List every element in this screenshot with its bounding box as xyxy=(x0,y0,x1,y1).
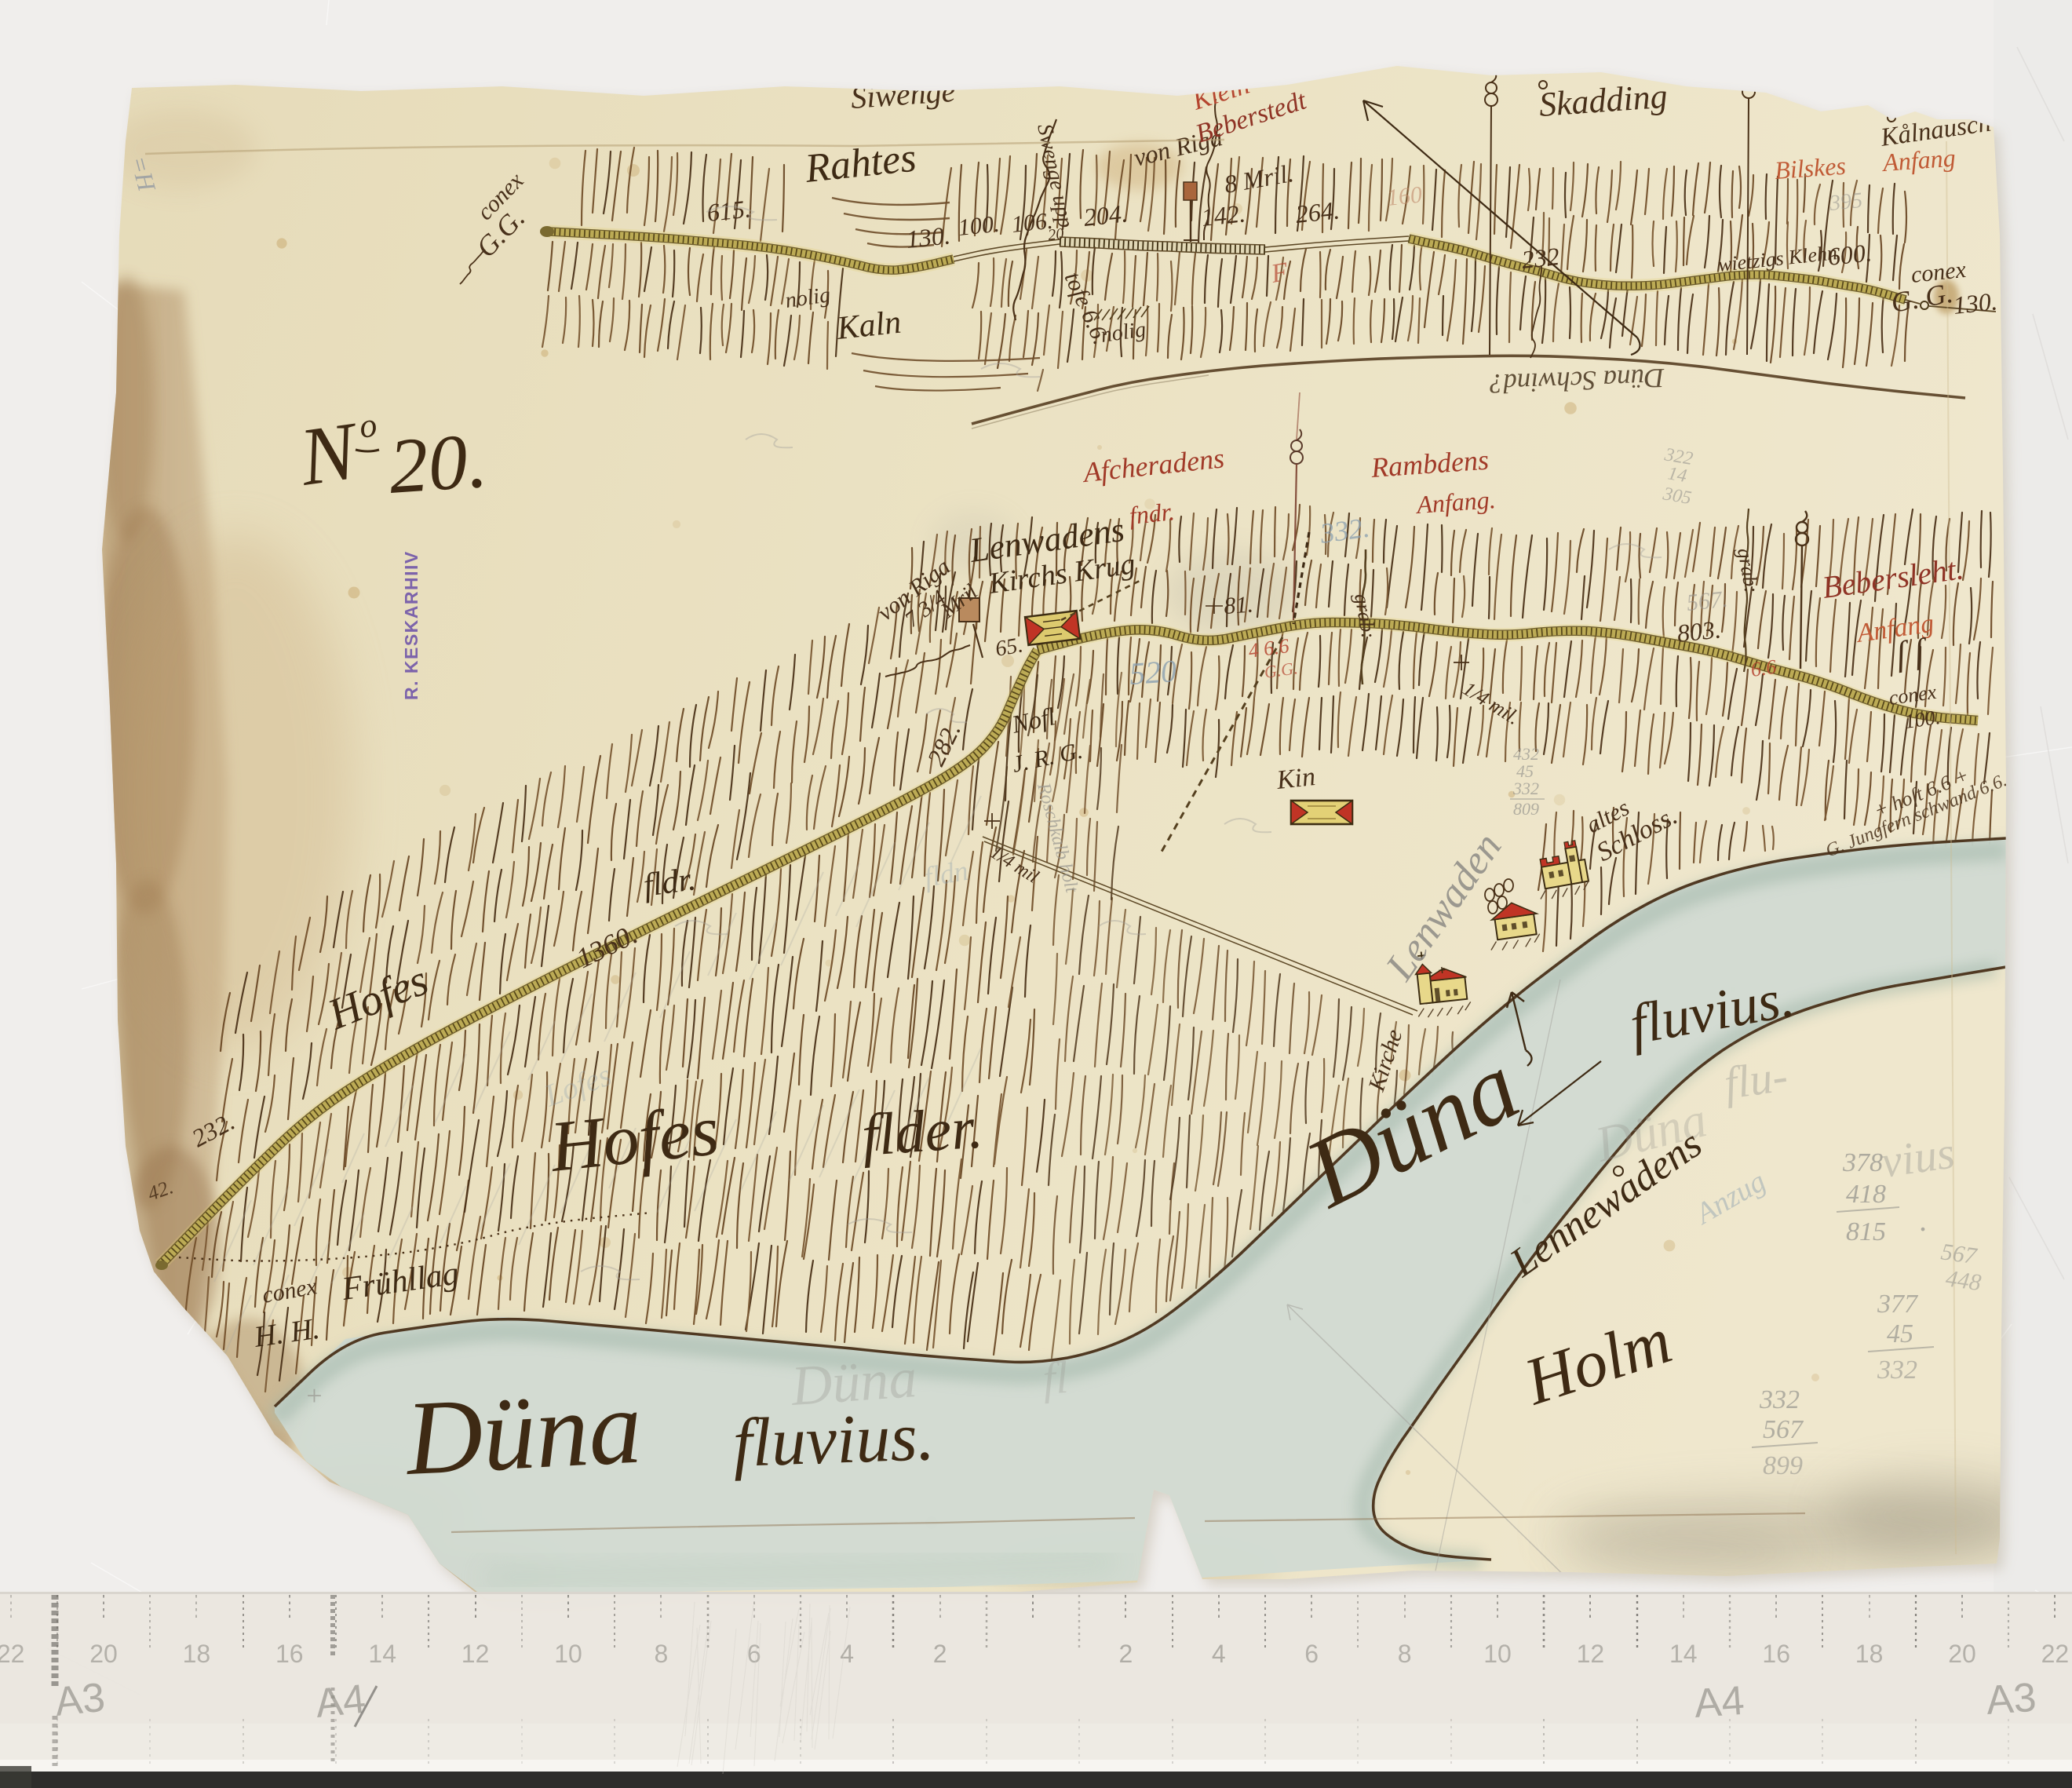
svg-text:A3: A3 xyxy=(1985,1675,2038,1724)
svg-text:Düna Schwind?: Düna Schwind? xyxy=(1489,363,1665,400)
svg-text:14: 14 xyxy=(1669,1640,1698,1668)
svg-text:100.: 100. xyxy=(957,211,1001,241)
svg-text:flder.: flder. xyxy=(859,1094,985,1169)
svg-text:flu-: flu- xyxy=(1721,1049,1791,1109)
svg-text:16: 16 xyxy=(1762,1640,1790,1668)
svg-text:2: 2 xyxy=(933,1640,947,1668)
svg-text:Bilskes: Bilskes xyxy=(1774,151,1847,184)
svg-text:264.: 264. xyxy=(1294,195,1341,228)
svg-text:18: 18 xyxy=(1855,1640,1884,1668)
svg-text:520: 520 xyxy=(1128,653,1177,691)
svg-text:130.: 130. xyxy=(1952,286,1998,319)
svg-text:Kaln: Kaln xyxy=(834,305,903,347)
svg-text:A3: A3 xyxy=(53,1675,107,1725)
svg-text:395: 395 xyxy=(1827,188,1863,216)
svg-text:Kin: Kin xyxy=(1275,762,1317,795)
svg-text:567: 567 xyxy=(1763,1415,1804,1444)
svg-text:160: 160 xyxy=(1385,181,1423,211)
svg-text:20: 20 xyxy=(1948,1640,1976,1668)
svg-text:20: 20 xyxy=(1047,225,1064,244)
svg-text:2: 2 xyxy=(1119,1640,1133,1668)
svg-text:377: 377 xyxy=(1877,1290,1919,1319)
svg-text:fndr.: fndr. xyxy=(1128,497,1176,530)
svg-text:378: 378 xyxy=(1842,1148,1883,1177)
svg-text:14: 14 xyxy=(368,1640,396,1668)
svg-text:803.: 803. xyxy=(1676,615,1722,648)
svg-text:332: 332 xyxy=(1877,1356,1917,1385)
svg-text:899: 899 xyxy=(1763,1451,1803,1480)
svg-text:22: 22 xyxy=(2041,1640,2070,1668)
svg-text:vius: vius xyxy=(1878,1127,1958,1188)
svg-text:18: 18 xyxy=(183,1640,211,1668)
svg-text:Düna: Düna xyxy=(789,1346,919,1418)
svg-text:12: 12 xyxy=(1577,1640,1605,1668)
svg-text:22: 22 xyxy=(0,1640,24,1668)
svg-text:130.: 130. xyxy=(905,221,951,254)
svg-text:R. KESKARHIIV: R. KESKARHIIV xyxy=(401,550,421,700)
svg-text:12: 12 xyxy=(461,1640,490,1668)
svg-text:10: 10 xyxy=(554,1640,582,1668)
svg-text:332: 332 xyxy=(1759,1385,1800,1414)
svg-text:81.: 81. xyxy=(1223,591,1254,619)
svg-text:418: 418 xyxy=(1846,1180,1886,1209)
svg-text:14: 14 xyxy=(1666,463,1688,487)
svg-text:332: 332 xyxy=(1512,779,1539,798)
svg-text:fldr.: fldr. xyxy=(641,861,698,904)
svg-text:65.: 65. xyxy=(994,633,1025,662)
svg-text:+: + xyxy=(305,1380,323,1411)
svg-text:204.: 204. xyxy=(1082,199,1129,232)
svg-text:A4: A4 xyxy=(1693,1678,1746,1727)
svg-text:6: 6 xyxy=(1304,1640,1319,1668)
svg-text:.: . xyxy=(1920,1202,1928,1238)
svg-text:567.: 567. xyxy=(1685,586,1729,616)
svg-text:600.: 600. xyxy=(1826,238,1873,271)
svg-text:567: 567 xyxy=(1939,1239,1979,1269)
svg-text:6.6: 6.6 xyxy=(1749,655,1778,681)
svg-text:fl: fl xyxy=(1041,1352,1070,1404)
svg-text:20.: 20. xyxy=(386,416,490,509)
svg-text:8: 8 xyxy=(1398,1640,1412,1668)
svg-text:615.: 615. xyxy=(706,194,752,227)
svg-text:45: 45 xyxy=(1887,1319,1913,1348)
svg-text:Anfang: Anfang xyxy=(1880,144,1957,177)
svg-text:20: 20 xyxy=(89,1640,118,1668)
svg-text:16: 16 xyxy=(275,1640,304,1668)
svg-text:142.: 142. xyxy=(1200,199,1246,232)
svg-text:10: 10 xyxy=(1483,1640,1512,1668)
svg-text:8: 8 xyxy=(655,1640,669,1668)
svg-text:809: 809 xyxy=(1513,799,1539,819)
svg-text:Düna: Düna xyxy=(402,1368,644,1498)
svg-text:448: 448 xyxy=(1944,1265,1983,1296)
svg-text:Anfang.: Anfang. xyxy=(1414,485,1497,519)
svg-text:815: 815 xyxy=(1846,1217,1886,1246)
svg-text:232: 232 xyxy=(1520,242,1561,274)
svg-text:4: 4 xyxy=(1212,1640,1226,1668)
